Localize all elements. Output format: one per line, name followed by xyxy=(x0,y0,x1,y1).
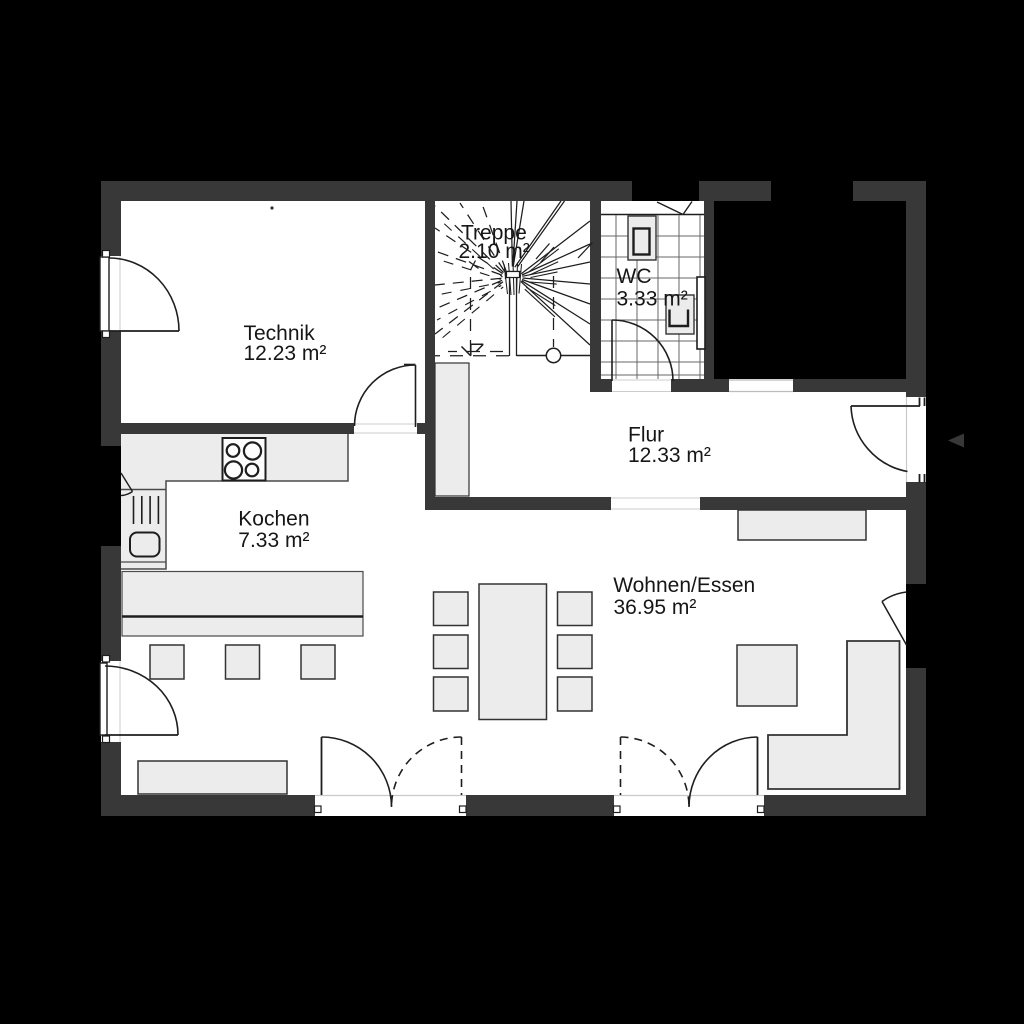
svg-text:Wohnen/Essen: Wohnen/Essen xyxy=(613,574,755,597)
svg-text:36.95 m²: 36.95 m² xyxy=(614,596,697,619)
svg-text:12.23 m²: 12.23 m² xyxy=(244,342,327,365)
svg-text:3.33 m²: 3.33 m² xyxy=(617,288,688,311)
svg-text:WC: WC xyxy=(617,265,652,288)
svg-text:7.33 m²: 7.33 m² xyxy=(238,529,309,552)
svg-text:2.10 m²: 2.10 m² xyxy=(459,240,530,263)
svg-text:Kochen: Kochen xyxy=(238,508,309,531)
svg-text:12.33 m²: 12.33 m² xyxy=(628,444,711,467)
